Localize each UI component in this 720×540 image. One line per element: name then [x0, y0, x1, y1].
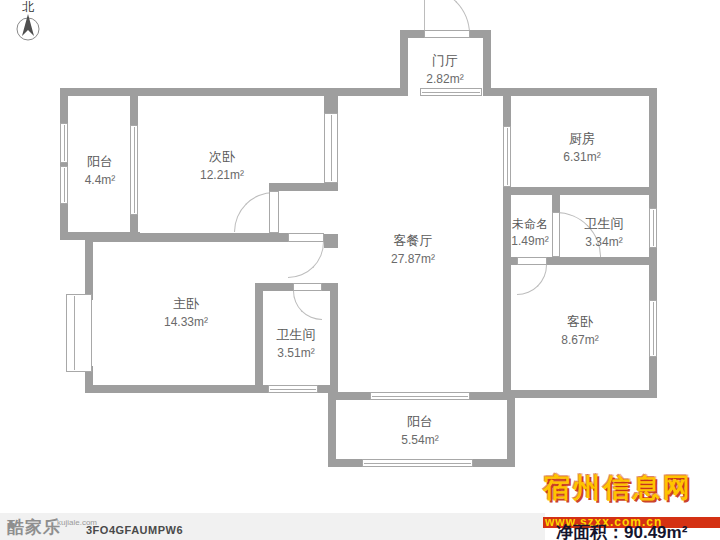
bay-window	[66, 294, 92, 372]
wall	[552, 195, 560, 212]
room-label-unnamed: 未命名 1.49m²	[511, 216, 548, 251]
wall	[503, 390, 657, 398]
room-label-master-bedroom: 主卧 14.33m²	[164, 295, 208, 331]
window	[268, 385, 318, 393]
door-arc-bathroom-351	[293, 291, 322, 320]
door-arc-entry	[424, 0, 470, 34]
wall	[503, 88, 511, 126]
wall	[60, 88, 68, 240]
room-area: 14.33m²	[164, 314, 208, 331]
wall	[400, 30, 424, 38]
room-label-kitchen: 厨房 6.31m²	[563, 130, 600, 166]
room-label-balcony-left: 阳台 4.4m²	[85, 153, 116, 189]
kujiale-logo: 酷家乐	[7, 516, 61, 539]
room-name: 门厅	[426, 52, 463, 71]
plan-code: 3FO4GFAUMPW6	[86, 524, 183, 536]
balcony-slider	[370, 392, 470, 400]
room-name: 厨房	[563, 130, 600, 149]
compass-icon	[11, 14, 45, 48]
room-label-guest-bedroom: 客卧 8.67m²	[561, 313, 598, 349]
window	[362, 459, 473, 467]
room-label-bathroom-351: 卫生间 3.51m²	[277, 326, 316, 362]
room-area: 1.49m²	[511, 233, 548, 250]
door-leaf	[552, 212, 560, 257]
window	[60, 123, 68, 163]
wall	[503, 187, 511, 390]
wall	[330, 283, 338, 393]
wall	[255, 283, 293, 291]
wall	[269, 232, 279, 242]
wall	[60, 88, 408, 96]
door-arc-guest-bedroom	[517, 265, 547, 295]
room-name: 主卧	[164, 295, 208, 314]
room-area: 3.34m²	[585, 234, 624, 251]
wall	[507, 392, 515, 467]
window	[130, 125, 138, 215]
wall	[547, 257, 657, 265]
room-area: 2.82m²	[426, 71, 463, 88]
room-name: 客卧	[561, 313, 598, 332]
wall	[491, 88, 657, 96]
window	[324, 113, 338, 183]
door-leaf	[293, 283, 322, 291]
window	[649, 208, 657, 248]
wall	[483, 30, 491, 96]
room-name: 客餐厅	[391, 232, 435, 251]
wall	[85, 233, 288, 242]
window	[60, 166, 68, 204]
wall	[400, 30, 408, 96]
window	[649, 300, 657, 357]
room-area: 3.51m²	[277, 345, 316, 362]
wall	[324, 234, 338, 248]
room-label-second-bedroom: 次卧 12.21m²	[200, 148, 244, 184]
wall	[470, 30, 491, 38]
compass-north: 北	[8, 0, 48, 48]
room-label-entry-hall: 门厅 2.82m²	[426, 52, 463, 88]
room-area: 8.67m²	[561, 332, 598, 349]
room-area: 27.87m²	[391, 251, 435, 268]
room-area: 4.4m²	[85, 172, 116, 189]
wall	[85, 232, 93, 300]
room-name: 未命名	[511, 216, 548, 233]
door-leaf	[424, 30, 470, 38]
net-area-text: 净面积：90.49m²	[556, 521, 687, 540]
room-area: 5.54m²	[401, 432, 438, 449]
wall	[503, 187, 657, 195]
entry-threshold	[420, 88, 482, 96]
kitchen-opening	[503, 126, 511, 187]
room-name: 阳台	[85, 153, 116, 172]
door-leaf	[517, 257, 547, 265]
room-name: 次卧	[200, 148, 244, 167]
room-name: 卫生间	[277, 326, 316, 345]
floor-plan-image: 北	[0, 0, 720, 540]
door-leaf	[269, 191, 279, 233]
room-name: 卫生间	[585, 215, 624, 234]
room-label-living-dining: 客餐厅 27.87m²	[391, 232, 435, 268]
wall	[328, 392, 336, 467]
room-label-bathroom-334: 卫生间 3.34m²	[585, 215, 624, 251]
door-arc-second-bedroom	[234, 192, 274, 232]
door-leaf	[288, 233, 324, 242]
room-area: 12.21m²	[200, 167, 244, 184]
door-arc-master-bedroom	[288, 242, 324, 278]
compass-north-label: 北	[8, 0, 48, 14]
wall	[255, 283, 263, 393]
wall	[503, 257, 517, 265]
watermark-site-name: 宿州信息网	[543, 470, 720, 506]
room-area: 6.31m²	[563, 149, 600, 166]
room-label-balcony-bottom: 阳台 5.54m²	[401, 413, 438, 449]
room-name: 阳台	[401, 413, 438, 432]
